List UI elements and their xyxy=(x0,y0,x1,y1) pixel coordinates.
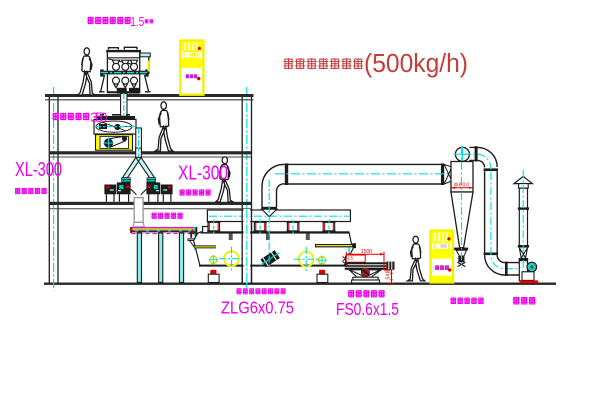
svg-text:1500: 1500 xyxy=(361,249,372,255)
svg-text:ZLG6x0.75: ZLG6x0.75 xyxy=(221,298,294,318)
svg-text:(500kg/h): (500kg/h) xyxy=(364,50,468,78)
svg-text:FS0.6x1.5: FS0.6x1.5 xyxy=(336,299,399,319)
svg-text:XL-300: XL-300 xyxy=(178,162,228,185)
svg-text:350: 350 xyxy=(90,110,107,125)
svg-text:Φ800: Φ800 xyxy=(454,182,469,188)
svg-text:15: 15 xyxy=(348,256,354,261)
svg-text:548: 548 xyxy=(386,270,392,279)
svg-text:XL-300: XL-300 xyxy=(15,158,62,181)
svg-text:1.5: 1.5 xyxy=(130,15,144,29)
